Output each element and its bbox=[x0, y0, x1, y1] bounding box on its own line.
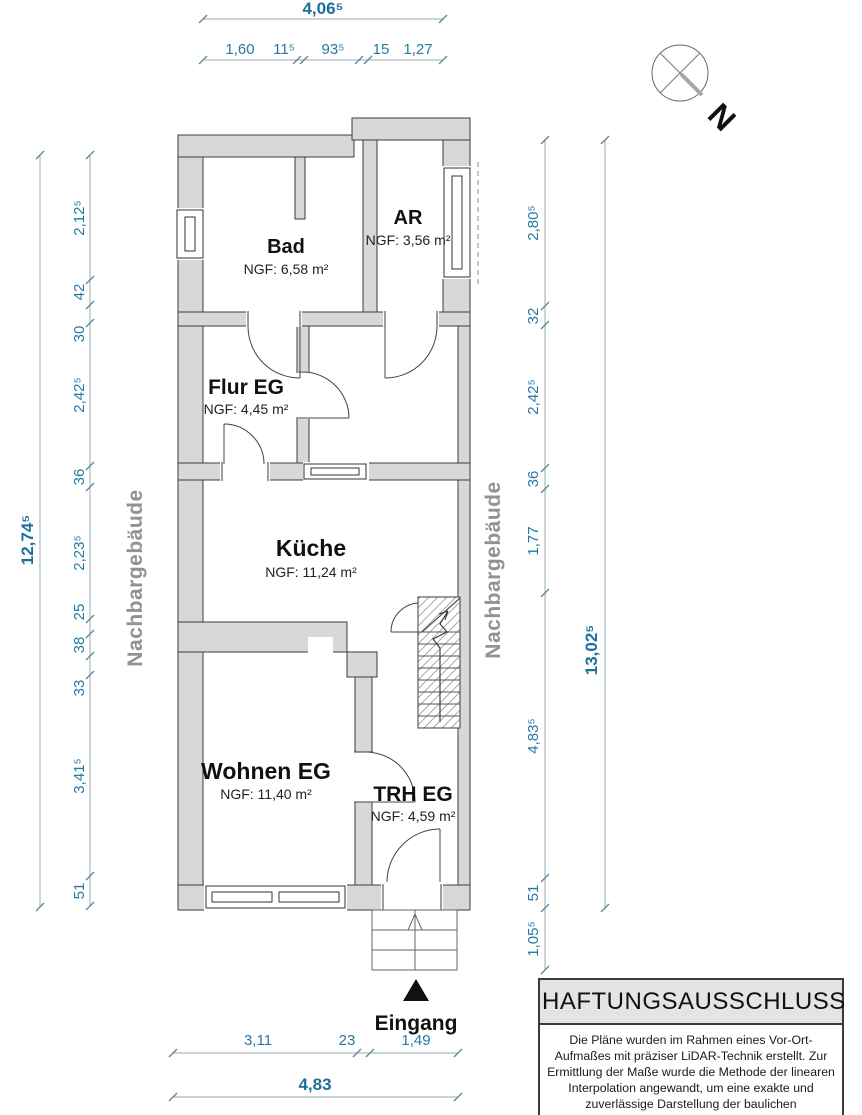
dim-left-0: 2,12⁵ bbox=[71, 200, 88, 235]
room-area-kueche: NGF: 11,24 m² bbox=[265, 564, 357, 580]
dim-left-total: 12,74⁵ bbox=[18, 515, 37, 566]
room-name-flur: Flur EG bbox=[208, 376, 284, 399]
entrance-triangle-icon bbox=[403, 979, 429, 1001]
wall-bad-ar-divider bbox=[363, 140, 377, 312]
door-bad bbox=[248, 326, 300, 378]
dim-left-8: 33 bbox=[71, 680, 88, 697]
dim-top-2: 93⁵ bbox=[322, 41, 345, 58]
entrance-label: Eingang bbox=[375, 1012, 458, 1035]
dim-left-10: 51 bbox=[71, 883, 88, 900]
dim-left-1: 42 bbox=[71, 284, 88, 301]
window-bad-glass bbox=[185, 217, 195, 251]
window-ar-glass bbox=[452, 176, 462, 269]
wall-top-right bbox=[352, 118, 470, 140]
floor-plan-drawing: N 4,06⁵ 1,60 11⁵ 93⁵ 15 1,27 12,74⁵ 2,12… bbox=[0, 0, 862, 1115]
room-area-flur: NGF: 4,45 m² bbox=[204, 401, 289, 417]
dim-left-3: 2,42⁵ bbox=[71, 377, 88, 412]
entrance-steps bbox=[372, 910, 457, 970]
dim-left-5: 2,23⁵ bbox=[71, 535, 88, 570]
dim-bottom-total: 4,83 bbox=[298, 1075, 331, 1094]
room-name-wohnen: Wohnen EG bbox=[201, 758, 331, 784]
dim-right-1: 32 bbox=[525, 308, 542, 325]
dim-top-0: 1,60 bbox=[225, 41, 254, 58]
room-name-kueche: Küche bbox=[276, 535, 346, 561]
dim-top-3: 15 bbox=[373, 41, 390, 58]
compass-n-label: N bbox=[701, 96, 743, 138]
door-flur-bottom bbox=[224, 424, 264, 464]
wall-top-left bbox=[178, 135, 354, 157]
dim-bottom-1: 23 bbox=[339, 1032, 356, 1049]
disclaimer-body: Die Pläne wurden im Rahmen eines Vor-Ort… bbox=[540, 1025, 842, 1115]
dim-right-6: 51 bbox=[525, 885, 542, 902]
dim-left-6: 25 bbox=[71, 604, 88, 621]
dim-right-4: 1,77 bbox=[525, 526, 542, 555]
dim-top-1: 11⁵ bbox=[273, 41, 295, 58]
window-wohnen-glass-left bbox=[212, 892, 272, 902]
staircase bbox=[418, 597, 460, 728]
neighbor-label-left: Nachbargebäude bbox=[124, 489, 147, 666]
wall-bad-stub bbox=[295, 157, 305, 219]
window-wohnen-glass-right bbox=[279, 892, 339, 902]
dim-right-3: 36 bbox=[525, 471, 542, 488]
room-name-bad: Bad bbox=[267, 236, 305, 258]
room-name-trh: TRH EG bbox=[373, 783, 452, 806]
door-ar bbox=[385, 326, 437, 378]
door-kueche-stair bbox=[391, 603, 420, 632]
dim-right-5: 4,83⁵ bbox=[525, 718, 542, 753]
room-area-trh: NGF: 4,59 m² bbox=[371, 808, 456, 824]
disclaimer-title: HAFTUNGSAUSSCHLUSS bbox=[540, 980, 842, 1025]
dim-left-9: 3,41⁵ bbox=[71, 758, 88, 793]
wall-step-block bbox=[347, 652, 377, 677]
dim-top-4: 1,27 bbox=[403, 41, 432, 58]
dim-right-2: 2,42⁵ bbox=[525, 379, 542, 414]
neighbor-label-right: Nachbargebäude bbox=[482, 481, 505, 658]
dim-bottom-0: 3,11 bbox=[244, 1032, 272, 1049]
window-interior-glass bbox=[311, 468, 359, 475]
dim-left-7: 38 bbox=[71, 637, 88, 654]
wall-wohnen-trh-upper bbox=[355, 677, 372, 752]
dim-right-total: 13,02⁵ bbox=[582, 625, 601, 676]
dim-left-4: 36 bbox=[71, 469, 88, 486]
room-name-ar: AR bbox=[394, 207, 423, 229]
room-area-bad: NGF: 6,58 m² bbox=[244, 261, 329, 277]
dim-right-0: 2,80⁵ bbox=[525, 205, 542, 240]
floorplan-page: N 4,06⁵ 1,60 11⁵ 93⁵ 15 1,27 12,74⁵ 2,12… bbox=[0, 0, 862, 1115]
room-area-wohnen: NGF: 11,40 m² bbox=[220, 786, 312, 802]
dim-top-total: 4,06⁵ bbox=[302, 0, 343, 18]
wall-wohnen-trh-lower bbox=[355, 802, 372, 885]
door-entrance bbox=[387, 829, 440, 882]
dim-right-7: 1,05⁵ bbox=[525, 921, 542, 956]
dim-left-2: 30 bbox=[71, 326, 88, 343]
north-compass-icon: N bbox=[652, 45, 743, 138]
room-area-ar: NGF: 3,56 m² bbox=[366, 232, 451, 248]
disclaimer-box: HAFTUNGSAUSSCHLUSS Die Pläne wurden im R… bbox=[538, 978, 844, 1115]
